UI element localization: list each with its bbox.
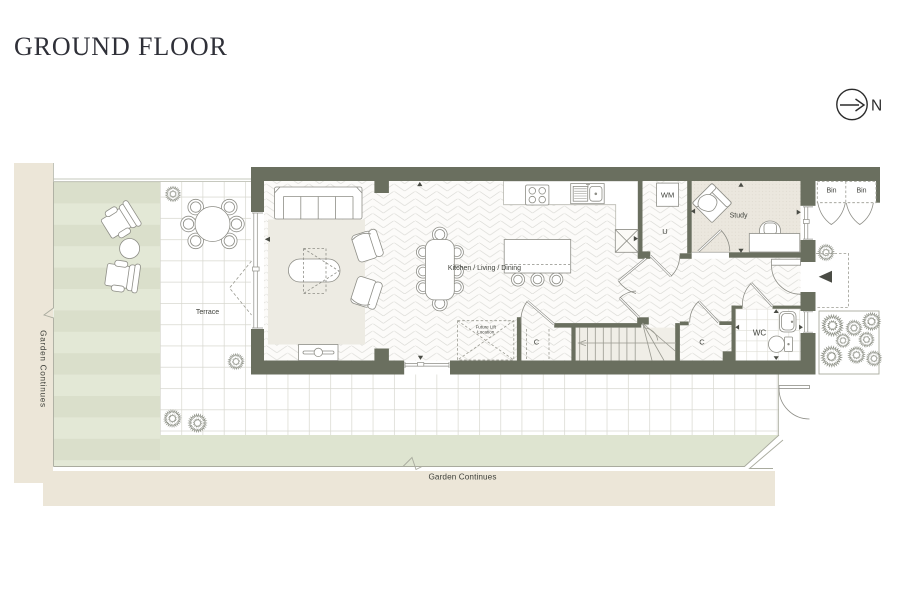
svg-text:Kitchen / Living / Dining: Kitchen / Living / Dining bbox=[448, 265, 521, 272]
svg-text:Garden Continues: Garden Continues bbox=[39, 330, 48, 408]
svg-text:WM: WM bbox=[661, 190, 674, 199]
svg-text:U: U bbox=[662, 227, 667, 236]
svg-text:N: N bbox=[871, 98, 882, 115]
svg-text:Study: Study bbox=[730, 212, 748, 219]
svg-text:Bin: Bin bbox=[856, 188, 866, 195]
svg-text:C: C bbox=[699, 337, 705, 346]
svg-text:GROUND FLOOR: GROUND FLOOR bbox=[14, 32, 228, 61]
svg-text:C: C bbox=[534, 337, 540, 346]
svg-text:Bin: Bin bbox=[826, 188, 836, 195]
svg-text:Garden Continues: Garden Continues bbox=[428, 473, 496, 482]
svg-text:Terrace: Terrace bbox=[196, 309, 219, 316]
svg-text:Location: Location bbox=[477, 329, 495, 334]
svg-text:WC: WC bbox=[753, 328, 767, 337]
